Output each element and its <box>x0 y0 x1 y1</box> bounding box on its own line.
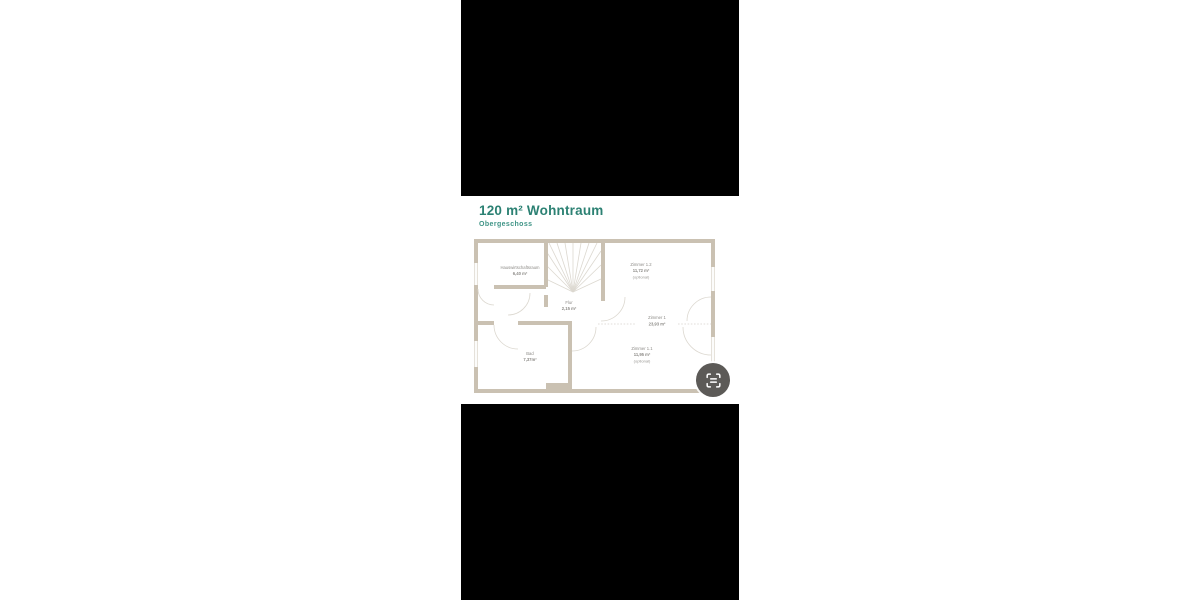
wall-bottom <box>474 389 715 393</box>
top-black-panel <box>461 0 739 196</box>
floorplan-canvas: Hauswirtschaftsraum 6,40 m² Zimmer 1.2 1… <box>474 239 715 393</box>
svg-text:Zimmer 1: Zimmer 1 <box>648 315 666 320</box>
svg-text:Zimmer 1.1: Zimmer 1.1 <box>631 346 653 351</box>
svg-text:(optional): (optional) <box>634 359 651 364</box>
floorplan-fullscreen-button[interactable] <box>696 363 730 397</box>
door-arc-zimmer11-hall <box>572 327 596 351</box>
svg-text:Zimmer 1.2: Zimmer 1.2 <box>630 262 652 267</box>
room-label-zimmer-1-2: Zimmer 1.2 11,72 m² (optional) <box>630 262 652 280</box>
wall-mid-left <box>478 321 494 325</box>
floorplan-header: 120 m² Wohntraum Obergeschoss <box>461 196 739 229</box>
viewer-column: 120 m² Wohntraum Obergeschoss <box>461 0 739 600</box>
page-title: 120 m² Wohntraum <box>479 203 739 219</box>
floorplan-card: 120 m² Wohntraum Obergeschoss <box>461 196 739 404</box>
svg-text:7,37m²: 7,37m² <box>523 357 537 362</box>
window-bad <box>474 341 478 367</box>
wall-stairs-right <box>601 243 605 301</box>
wall-left <box>474 239 478 393</box>
wall-mid-center <box>518 321 572 325</box>
wall-top <box>474 239 715 243</box>
wall-shaft-block <box>546 383 570 389</box>
scan-icon <box>704 371 723 390</box>
window-zimmer11 <box>711 337 715 363</box>
room-label-hauswirtschaftsraum: Hauswirtschaftsraum 6,40 m² <box>500 265 540 276</box>
svg-text:Hauswirtschaftsraum: Hauswirtschaftsraum <box>500 265 540 270</box>
door-arc-zimmer12-optional <box>687 297 711 321</box>
svg-text:2,15 m²: 2,15 m² <box>562 306 577 311</box>
svg-text:(optional): (optional) <box>633 275 650 280</box>
svg-text:11,95 m²: 11,95 m² <box>634 352 651 357</box>
svg-text:Bad: Bad <box>526 351 534 356</box>
wall-hwr-bottom <box>494 285 546 289</box>
door-arc-bad <box>494 325 518 349</box>
room-label-bad: Bad 7,37m² <box>523 351 537 362</box>
window-hwr <box>474 263 478 285</box>
floor-label: Obergeschoss <box>479 221 739 229</box>
floorplan-drawing: Hauswirtschaftsraum 6,40 m² Zimmer 1.2 1… <box>474 239 715 393</box>
room-label-zimmer-1: Zimmer 1 23,93 m² <box>648 315 666 327</box>
door-arc-landing <box>508 293 530 315</box>
bottom-black-panel <box>461 404 739 600</box>
walls <box>474 239 715 393</box>
door-arc-zimmer11-optional <box>683 327 711 355</box>
door-arc-hwr <box>478 289 494 305</box>
svg-text:23,93 m²: 23,93 m² <box>649 322 666 327</box>
room-label-zimmer-1-1: Zimmer 1.1 11,95 m² (optional) <box>631 346 653 364</box>
svg-text:11,72 m²: 11,72 m² <box>633 268 650 273</box>
wall-bad-right <box>568 325 572 389</box>
stairs <box>546 243 601 292</box>
window-zimmer12 <box>711 267 715 291</box>
room-label-flur: Flur 2,15 m² <box>562 300 577 311</box>
svg-text:Flur: Flur <box>565 300 573 305</box>
wall-stairs-left-stub <box>544 295 548 307</box>
svg-text:6,40 m²: 6,40 m² <box>513 271 528 276</box>
wall-stairs-left <box>544 243 548 287</box>
